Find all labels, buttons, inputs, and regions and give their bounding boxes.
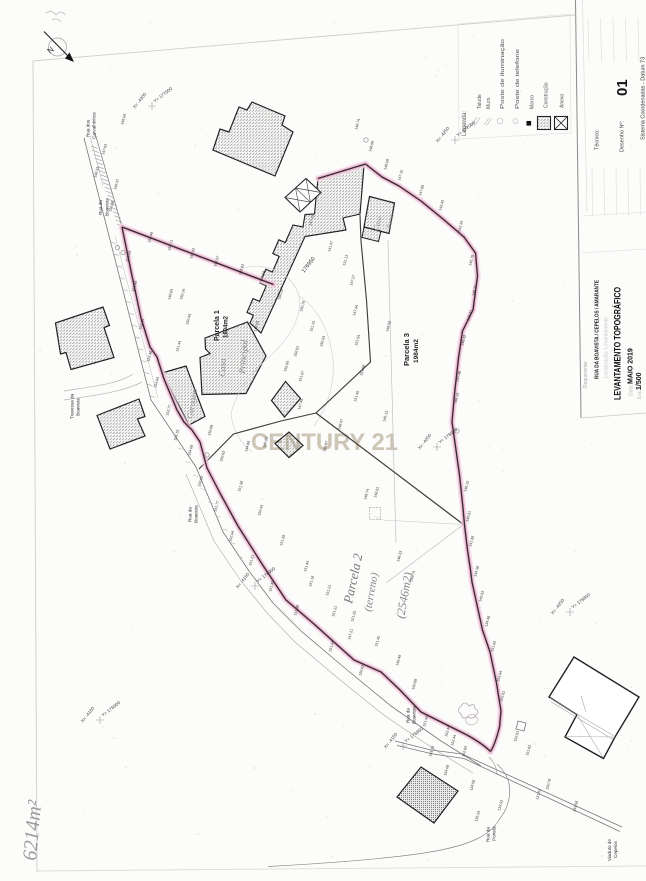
svg-text:Sistema Coordenadas - Datum 73: Sistema Coordenadas - Datum 73	[641, 57, 646, 140]
svg-text:Casa: Casa	[217, 358, 228, 377]
svg-text:Viaduto de: Viaduto de	[607, 839, 612, 861]
svg-text:Travessa da: Travessa da	[70, 393, 75, 419]
svg-text:Carvalhinhos: Carvalhinhos	[92, 111, 97, 139]
svg-text:1/500: 1/500	[636, 372, 643, 390]
svg-text:Cepelos: Cepelos	[613, 840, 618, 858]
svg-text:Poste de iluminação: Poste de iluminação	[500, 39, 506, 109]
svg-text:Rua dos: Rua dos	[86, 119, 91, 137]
svg-text:Rua da: Rua da	[98, 200, 103, 215]
svg-text:Rua da: Rua da	[188, 507, 193, 522]
svg-text:LEVANTAMENTO TOPOGRÁFICO: LEVANTAMENTO TOPOGRÁFICO	[613, 287, 624, 400]
svg-text:Talude: Talude	[477, 94, 483, 109]
svg-text:01: 01	[614, 79, 631, 96]
svg-text:Anexo: Anexo	[560, 94, 566, 108]
svg-text:Poste de telefone: Poste de telefone	[515, 49, 521, 109]
svg-text:Requerente:: Requerente:	[583, 360, 589, 388]
svg-text:Localização: Levantamento: Localização: Levantamento	[604, 317, 610, 378]
svg-text:Portela: Portela	[492, 826, 497, 841]
svg-text:1604m2: 1604m2	[224, 315, 230, 338]
svg-text:Marco: Marco	[530, 95, 536, 109]
svg-text:Boavista: Boavista	[194, 505, 199, 523]
svg-text:1984m2: 1984m2	[413, 339, 420, 363]
svg-text:Desenho Nº:: Desenho Nº:	[619, 120, 626, 152]
svg-text:Construção: Construção	[544, 82, 550, 108]
svg-text:Muro: Muro	[486, 97, 492, 109]
svg-text:Rua da: Rua da	[406, 708, 411, 723]
svg-text:Parcela 1: Parcela 1	[214, 310, 221, 341]
svg-text:Rua da: Rua da	[486, 827, 491, 842]
svg-text:Data:: Data:	[629, 384, 635, 396]
svg-text:RUA DA BOAVISTA / CEPELOS / AM: RUA DA BOAVISTA / CEPELOS / AMARANTE	[595, 280, 601, 379]
svg-text:MAIO 2019: MAIO 2019	[628, 348, 635, 384]
svg-text:Parcela 3: Parcela 3	[402, 333, 411, 366]
svg-text:Técnico:: Técnico:	[595, 129, 601, 150]
svg-text:Boavista: Boavista	[76, 398, 81, 416]
svg-text:Boavista: Boavista	[412, 706, 417, 724]
